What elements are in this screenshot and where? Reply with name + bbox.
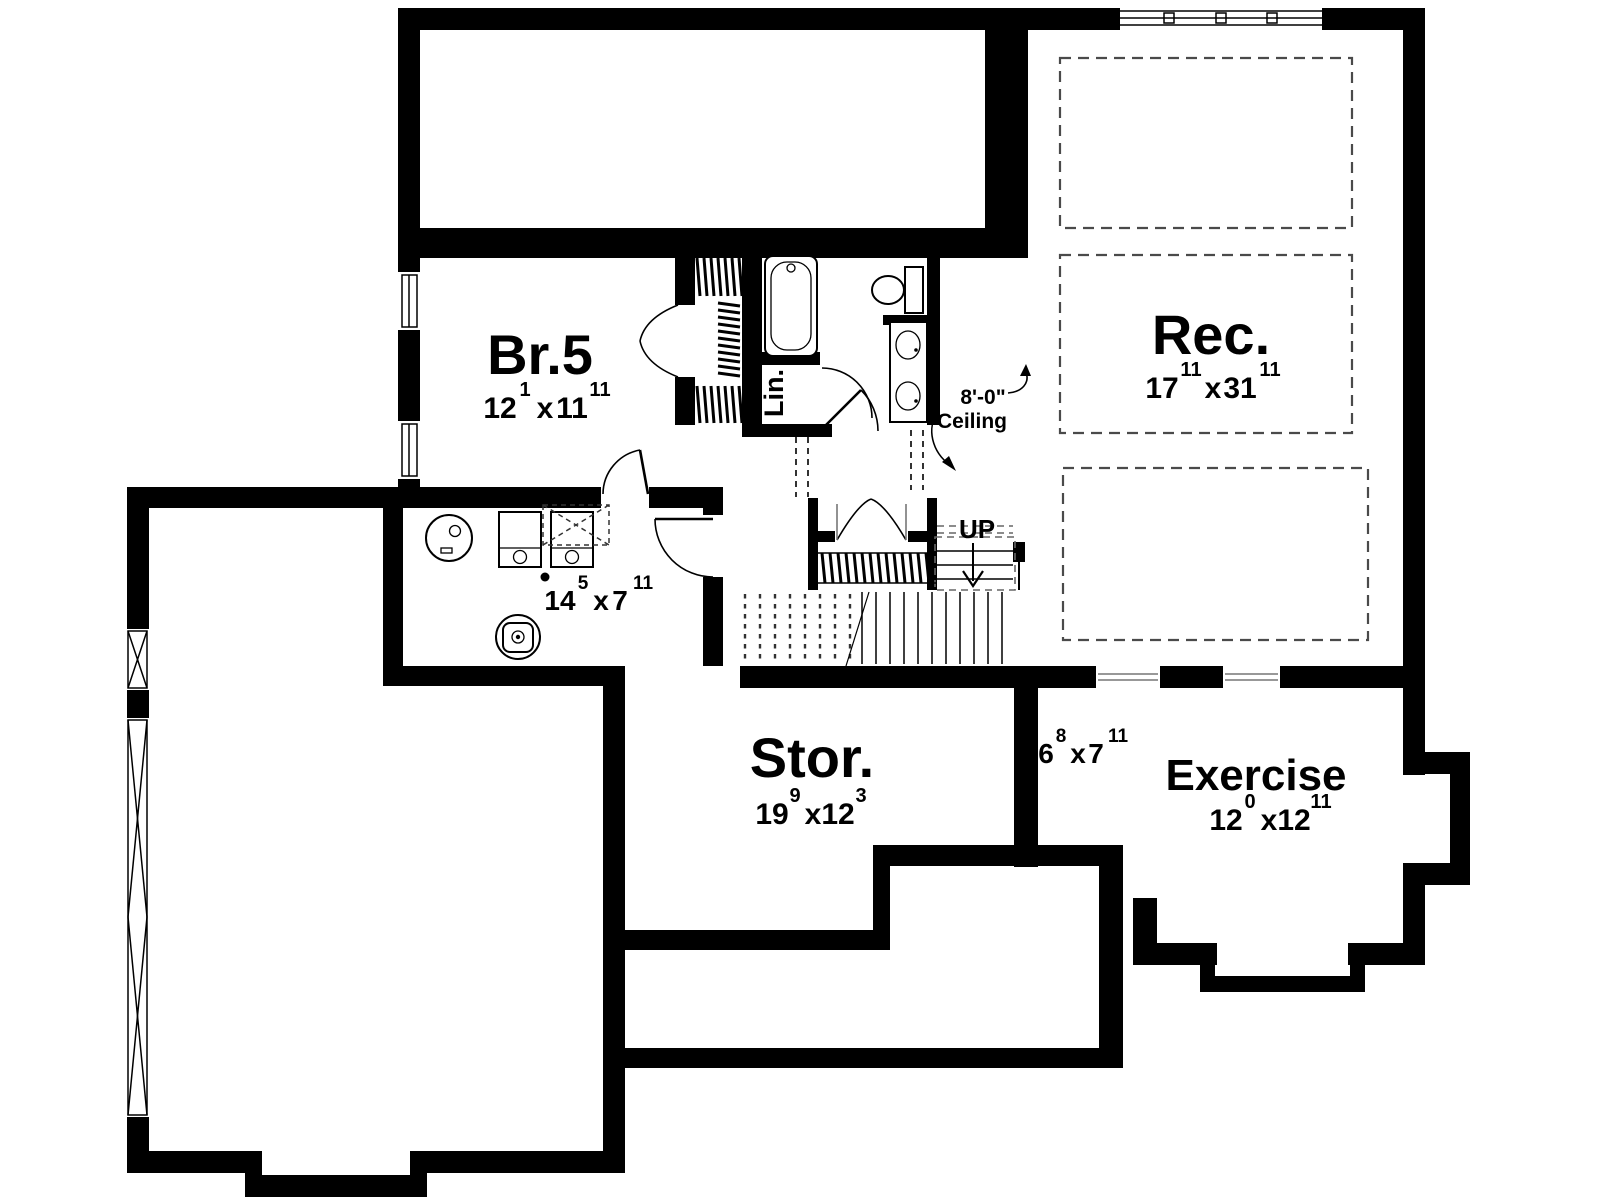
room-label-rec: Rec. bbox=[1152, 303, 1270, 366]
floor-drain-icon bbox=[541, 573, 550, 582]
rec-dim-sep: x bbox=[1205, 372, 1222, 405]
vanity-double-sink-icon bbox=[890, 322, 927, 422]
future-area-3 bbox=[1063, 468, 1368, 640]
washer-icon bbox=[499, 512, 541, 567]
arrowhead-up-icon bbox=[1020, 364, 1031, 376]
dryer-icon bbox=[551, 512, 593, 567]
stor-dim-sep: x bbox=[805, 798, 822, 831]
window-left-small bbox=[125, 629, 151, 690]
utility-dim-b: 7 bbox=[612, 585, 628, 616]
nook-dim-asup: 8 bbox=[1056, 726, 1067, 747]
utility-dim-asup: 5 bbox=[578, 573, 589, 594]
future-area-1 bbox=[1060, 58, 1352, 228]
opening-rec-exercise-right bbox=[1223, 664, 1280, 690]
opening-rec-exercise-left bbox=[1096, 664, 1160, 690]
room-label-linen: Lin. bbox=[759, 369, 789, 417]
arrowhead-down-icon bbox=[942, 456, 956, 471]
exercise-dim-sep: x bbox=[1261, 804, 1278, 837]
fixtures bbox=[426, 256, 927, 659]
nook-dim-bsup: 11 bbox=[1108, 726, 1129, 747]
rec-dim-bsup: 11 bbox=[1259, 359, 1280, 381]
window-br5-lower bbox=[396, 421, 422, 479]
floor-plan-page: Br.5 12 1 x 11 11 Rec. 17 11 x 31 11 Sto… bbox=[0, 0, 1600, 1200]
br5-dim-b: 11 bbox=[556, 392, 588, 425]
br5-closet-rod-bottom bbox=[697, 386, 742, 423]
stair-treads-dashed bbox=[745, 594, 850, 664]
exercise-dim-b: 12 bbox=[1277, 804, 1310, 837]
bathtub-icon bbox=[765, 256, 817, 356]
wall-segments bbox=[127, 8, 1470, 1197]
stair-treads-solid bbox=[862, 592, 1002, 664]
ceiling-height-note: 8'-0" bbox=[960, 386, 1005, 409]
rec-dim-asup: 11 bbox=[1180, 359, 1201, 381]
stairs bbox=[745, 526, 1019, 666]
nook-dim-b: 7 bbox=[1088, 738, 1104, 769]
door-bathroom bbox=[820, 368, 878, 431]
stor-dim-b: 12 bbox=[821, 798, 854, 831]
understair-closet-shelf bbox=[818, 553, 937, 583]
br5-closet-rod-top bbox=[697, 258, 742, 296]
nook-dim-a: 6 bbox=[1038, 738, 1054, 769]
ceiling-break-lines bbox=[796, 430, 923, 497]
exercise-dim-a: 12 bbox=[1209, 804, 1242, 837]
ceiling-word-note: Ceiling bbox=[937, 410, 1007, 433]
stair-break-line bbox=[846, 592, 869, 666]
br5-dim-sep: x bbox=[537, 392, 554, 425]
utility-dim-bsup: 11 bbox=[633, 573, 654, 594]
toilet-icon bbox=[872, 267, 923, 313]
stor-dim-asup: 9 bbox=[789, 785, 800, 807]
water-heater-icon bbox=[426, 515, 472, 561]
utility-dim-a: 14 bbox=[544, 585, 576, 616]
stor-dim-bsup: 3 bbox=[855, 785, 866, 807]
window-left-long bbox=[125, 718, 151, 1117]
stairs-up-label: UP bbox=[959, 514, 995, 544]
br5-dim-a: 12 bbox=[483, 392, 516, 425]
door-br5-closet-double bbox=[640, 305, 678, 377]
stor-dim-a: 19 bbox=[755, 798, 788, 831]
window-rec-top bbox=[1120, 6, 1322, 32]
exercise-dim-asup: 0 bbox=[1244, 791, 1255, 813]
window-br5-upper bbox=[396, 272, 422, 330]
br5-dim-asup: 1 bbox=[519, 379, 530, 401]
br5-closet-rod-right bbox=[718, 303, 740, 376]
walls bbox=[127, 8, 1470, 1197]
rec-dim-a: 17 bbox=[1145, 372, 1178, 405]
nook-dim-sep: x bbox=[1070, 738, 1086, 769]
utility-dim-sep: x bbox=[593, 585, 609, 616]
opening-utility-door bbox=[703, 515, 723, 577]
furnace-icon bbox=[496, 615, 540, 659]
door-hall-double bbox=[837, 499, 906, 540]
floor-plan-drawing: Br.5 12 1 x 11 11 Rec. 17 11 x 31 11 Sto… bbox=[0, 0, 1600, 1200]
br5-dim-bsup: 11 bbox=[589, 379, 610, 401]
room-label-br5: Br.5 bbox=[487, 323, 593, 386]
rec-dim-b: 31 bbox=[1223, 372, 1256, 405]
room-label-stor: Stor. bbox=[750, 726, 874, 789]
exercise-dim-bsup: 11 bbox=[1310, 791, 1331, 813]
